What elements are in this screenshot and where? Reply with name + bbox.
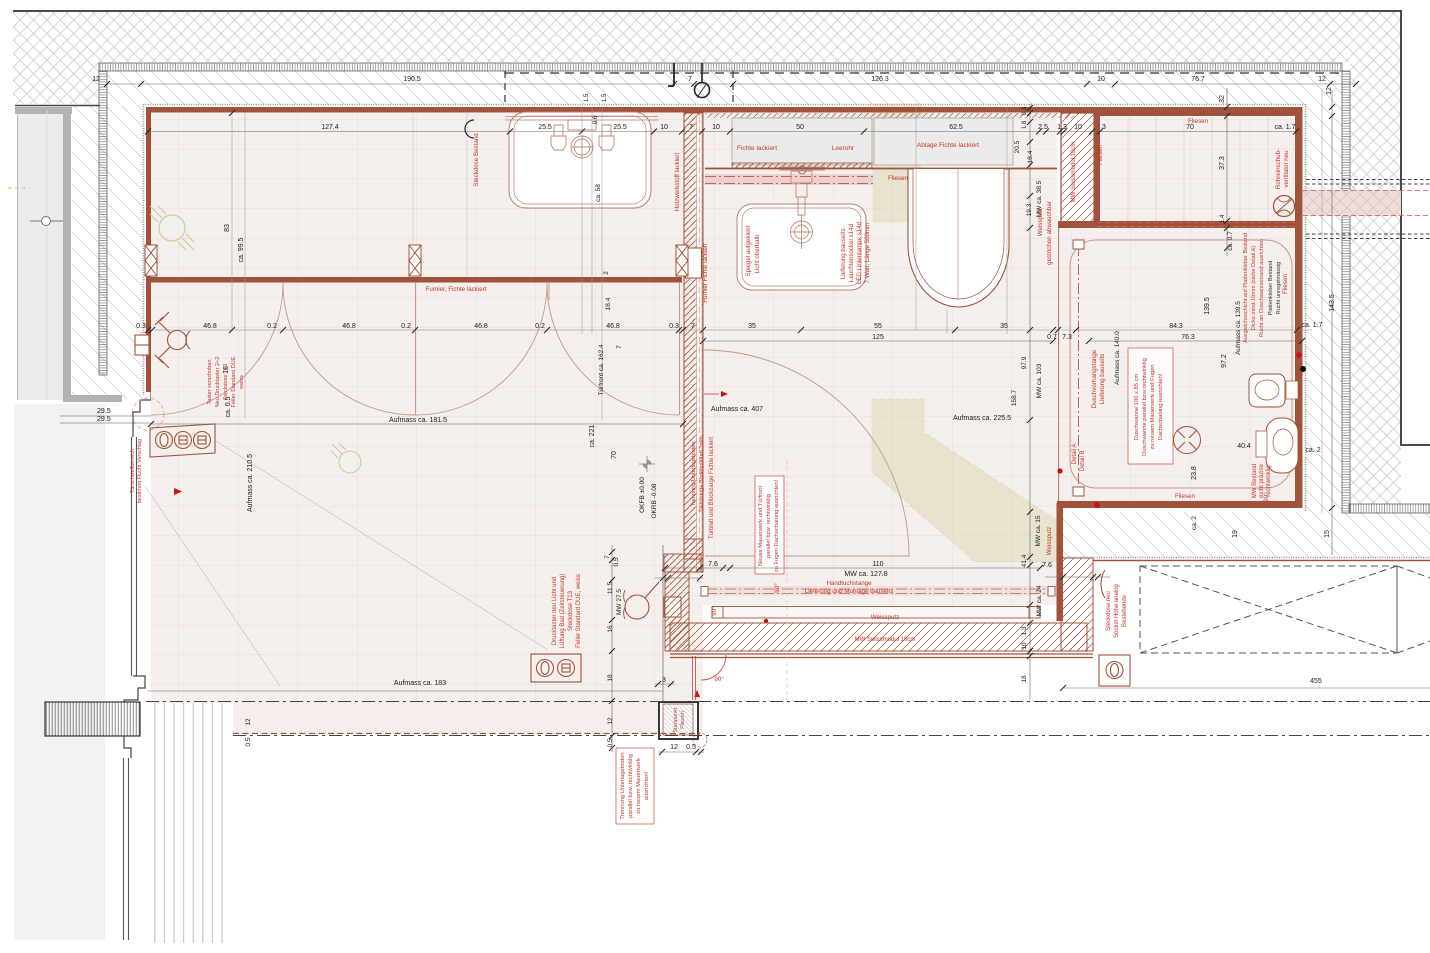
svg-text:Türfront ca. 162.4: Türfront ca. 162.4 bbox=[598, 344, 605, 396]
svg-text:10: 10 bbox=[1097, 76, 1105, 83]
svg-text:35: 35 bbox=[1000, 323, 1008, 330]
svg-text:Handtuchstange: Handtuchstange bbox=[826, 580, 872, 587]
svg-text:1.4: 1.4 bbox=[1219, 214, 1226, 223]
svg-text:Silikonfuge Bodenplatten 3mm: Silikonfuge Bodenplatten 3mm bbox=[699, 436, 705, 512]
svg-text:1.3: 1.3 bbox=[1057, 124, 1067, 131]
svg-text:7: 7 bbox=[616, 345, 623, 349]
svg-text:Türschwellbereich: Türschwellbereich bbox=[130, 449, 136, 493]
svg-text:40.4: 40.4 bbox=[1237, 443, 1251, 450]
svg-text:84.3: 84.3 bbox=[1169, 323, 1183, 330]
svg-text:455: 455 bbox=[1310, 678, 1322, 685]
svg-text:ca. 1.7: ca. 1.7 bbox=[1274, 124, 1295, 131]
svg-text:12: 12 bbox=[1318, 76, 1326, 83]
svg-text:10: 10 bbox=[1021, 642, 1028, 650]
svg-text:weiss: weiss bbox=[239, 375, 245, 390]
svg-text:Weissputz: Weissputz bbox=[1046, 527, 1053, 555]
svg-text:7: 7 bbox=[604, 555, 611, 559]
svg-text:Duschvorhangstange: Duschvorhangstange bbox=[1091, 349, 1098, 408]
svg-text:MW Bestand: MW Bestand bbox=[1252, 464, 1258, 498]
svg-text:Taster verschoben: Taster verschoben bbox=[207, 360, 213, 405]
svg-text:1.8: 1.8 bbox=[1022, 120, 1028, 129]
svg-text:11.5: 11.5 bbox=[607, 582, 614, 595]
svg-text:Ausgleichsschicht auf Plattenk: Ausgleichsschicht auf Plattenkleber Best… bbox=[1243, 233, 1249, 343]
svg-text:3: 3 bbox=[662, 677, 666, 684]
svg-text:0.2: 0.2 bbox=[401, 323, 411, 330]
svg-text:Fliesen: Fliesen bbox=[1175, 493, 1196, 500]
svg-text:Dicke mind 10mm (siehe Detail: Dicke mind 10mm (siehe Detail A) bbox=[1251, 246, 1257, 330]
svg-text:62.5: 62.5 bbox=[949, 124, 963, 131]
svg-text:MW Swissmodul 10cm: MW Swissmodul 10cm bbox=[855, 637, 916, 643]
svg-text:ca. 2: ca. 2 bbox=[1191, 516, 1198, 530]
svg-text:ca. 1.7: ca. 1.7 bbox=[1301, 322, 1322, 329]
svg-text:7 Watt, Länge 500mm: 7 Watt, Länge 500mm bbox=[864, 223, 871, 284]
svg-text:Fliesen: Fliesen bbox=[1282, 273, 1289, 294]
svg-text:1.5: 1.5 bbox=[602, 93, 608, 102]
svg-text:zu neuem Mauerwerk: zu neuem Mauerwerk bbox=[636, 758, 642, 814]
svg-text:35: 35 bbox=[748, 323, 756, 330]
svg-text:Dachschalung ausrichten!: Dachschalung ausrichten! bbox=[1158, 373, 1164, 440]
svg-text:Lüftung Bad (Zeitsteuerung): Lüftung Bad (Zeitsteuerung) bbox=[560, 574, 566, 649]
svg-text:12: 12 bbox=[670, 744, 678, 751]
svg-text:18.4: 18.4 bbox=[605, 297, 612, 310]
svg-text:19: 19 bbox=[1232, 530, 1239, 538]
svg-text:ca. 58: ca. 58 bbox=[595, 184, 602, 202]
svg-text:0.5: 0.5 bbox=[607, 738, 614, 747]
svg-text:0.5: 0.5 bbox=[245, 737, 252, 746]
svg-text:76.3: 76.3 bbox=[1181, 334, 1195, 341]
svg-text:Rucht an Duschwannenrand ausri: Rucht an Duschwannenrand ausrichten bbox=[1259, 239, 1265, 337]
svg-text:7: 7 bbox=[688, 76, 692, 83]
svg-text:Aufmass ca. 210.5: Aufmass ca. 210.5 bbox=[247, 454, 254, 512]
svg-text:90°: 90° bbox=[714, 676, 724, 683]
svg-text:Aufmass ca. 181.5: Aufmass ca. 181.5 bbox=[389, 417, 447, 424]
svg-text:90°: 90° bbox=[1263, 492, 1270, 502]
svg-text:90°: 90° bbox=[774, 583, 781, 593]
svg-text:ca. 221: ca. 221 bbox=[589, 424, 596, 447]
svg-text:0.3: 0.3 bbox=[136, 323, 146, 330]
svg-text:Licht oberhalb: Licht oberhalb bbox=[754, 234, 761, 273]
svg-text:29.5: 29.5 bbox=[97, 416, 111, 423]
svg-text:Fichte lackiert: Fichte lackiert bbox=[737, 145, 777, 152]
svg-text:25.5: 25.5 bbox=[613, 124, 627, 131]
svg-text:0.2: 0.2 bbox=[267, 323, 277, 330]
svg-text:2.5: 2.5 bbox=[1038, 124, 1048, 131]
svg-text:70: 70 bbox=[1186, 124, 1194, 131]
svg-text:Sockel Höhe analog: Sockel Höhe analog bbox=[1114, 584, 1120, 638]
svg-text:90°: 90° bbox=[711, 606, 718, 616]
svg-text:97.2: 97.2 bbox=[1221, 354, 1228, 368]
svg-text:MW ca. 15: MW ca. 15 bbox=[1035, 515, 1042, 546]
svg-text:Lieferung und Montage bauseits: Lieferung und Montage bauseits bbox=[805, 588, 893, 595]
svg-text:MW Swissmodul 10cm: MW Swissmodul 10cm bbox=[1071, 142, 1077, 203]
svg-text:16: 16 bbox=[607, 625, 614, 633]
svg-text:70: 70 bbox=[611, 451, 618, 459]
svg-text:Spiegel aufgeklebt: Spiegel aufgeklebt bbox=[745, 225, 752, 276]
svg-text:Fliesen: Fliesen bbox=[680, 711, 686, 729]
svg-text:LED Linienlampe s14d: LED Linienlampe s14d bbox=[856, 221, 863, 284]
svg-text:0.2: 0.2 bbox=[535, 323, 545, 330]
svg-text:12: 12 bbox=[245, 718, 252, 726]
svg-text:190.5: 190.5 bbox=[403, 76, 421, 83]
svg-text:37.3: 37.3 bbox=[1219, 156, 1226, 170]
svg-text:Duschwanne parallel bzw rechtw: Duschwanne parallel bzw rechtwinklig bbox=[1142, 358, 1148, 456]
svg-text:83: 83 bbox=[224, 224, 231, 232]
svg-text:Feller Standard DUE: Feller Standard DUE bbox=[231, 356, 237, 407]
svg-text:Holzwerkstoff lackiert: Holzwerkstoff lackiert bbox=[674, 153, 681, 212]
svg-text:20.5: 20.5 bbox=[1014, 140, 1021, 153]
svg-text:19.3: 19.3 bbox=[1026, 203, 1033, 216]
svg-text:76.7: 76.7 bbox=[1191, 76, 1205, 83]
svg-text:Furnier, Fichte lackiert: Furnier, Fichte lackiert bbox=[426, 286, 487, 293]
svg-text:1.5: 1.5 bbox=[584, 93, 590, 102]
svg-text:0.5: 0.5 bbox=[686, 744, 696, 751]
svg-text:Ablage Fichte lackiert: Ablage Fichte lackiert bbox=[917, 142, 979, 149]
svg-text:Steckdose Bestand: Steckdose Bestand bbox=[473, 133, 480, 187]
svg-text:Plattenkleber Bestand: Plattenkleber Bestand bbox=[1268, 261, 1274, 316]
svg-text:7: 7 bbox=[691, 323, 695, 330]
svg-text:Leerohr: Leerohr bbox=[832, 145, 855, 152]
svg-text:Fliesen: Fliesen bbox=[888, 175, 909, 182]
svg-text:29.5: 29.5 bbox=[97, 408, 111, 415]
svg-text:Neu Drucktaster 2+2: Neu Drucktaster 2+2 bbox=[215, 357, 221, 408]
svg-text:bestimmt Flucht Verschlag: bestimmt Flucht Verschlag bbox=[137, 439, 143, 504]
svg-text:Fliesen: Fliesen bbox=[1097, 144, 1104, 165]
svg-text:3: 3 bbox=[1102, 124, 1106, 131]
svg-text:Leuchtensockel s14d: Leuchtensockel s14d bbox=[848, 223, 855, 282]
svg-text:Rohreinschub-: Rohreinschub- bbox=[1275, 149, 1282, 189]
svg-text:Aufmass ca. 140.0: Aufmass ca. 140.0 bbox=[1114, 331, 1121, 385]
svg-text:Aufmass ca. 139.5: Aufmass ca. 139.5 bbox=[1235, 301, 1242, 355]
svg-text:41.4: 41.4 bbox=[1021, 554, 1028, 567]
svg-text:Trennung Unterlagsboden: Trennung Unterlagsboden bbox=[691, 442, 697, 507]
svg-text:ausrichten!: ausrichten! bbox=[644, 771, 650, 800]
svg-text:Steckdose T13: Steckdose T13 bbox=[223, 364, 229, 401]
svg-text:0.5: 0.5 bbox=[613, 557, 620, 566]
svg-text:Rucht unregelmässig: Rucht unregelmässig bbox=[1276, 262, 1282, 315]
svg-text:1.3: 1.3 bbox=[1021, 626, 1028, 635]
svg-text:0.3: 0.3 bbox=[1022, 106, 1028, 115]
svg-text:12: 12 bbox=[1326, 87, 1333, 95]
svg-text:7.3: 7.3 bbox=[1062, 334, 1072, 341]
svg-text:25.5: 25.5 bbox=[538, 124, 552, 131]
svg-text:Türblatt und Blockzarge Fichte: Türblatt und Blockzarge Fichte lackiert bbox=[709, 437, 715, 539]
svg-text:zu neuem Mauerwerk und Fugen: zu neuem Mauerwerk und Fugen bbox=[1150, 364, 1156, 449]
svg-text:7.6: 7.6 bbox=[1042, 562, 1052, 569]
svg-text:parallel bzw. rechtwinklig: parallel bzw. rechtwinklig bbox=[766, 494, 772, 558]
svg-text:7: 7 bbox=[689, 124, 693, 131]
svg-text:ca. 2: ca. 2 bbox=[1305, 447, 1320, 454]
svg-text:Furnier Fichte lackiert: Furnier Fichte lackiert bbox=[702, 243, 709, 303]
svg-text:10: 10 bbox=[660, 124, 668, 131]
svg-text:Fliesen: Fliesen bbox=[1188, 118, 1209, 125]
svg-text:zu Fugen Dachschalung ausricht: zu Fugen Dachschalung ausrichten! bbox=[774, 479, 780, 572]
svg-text:143.5: 143.5 bbox=[1329, 294, 1336, 312]
svg-text:Trennung Unterlagsboden: Trennung Unterlagsboden bbox=[620, 752, 626, 819]
svg-text:Steckdose T13: Steckdose T13 bbox=[568, 590, 574, 631]
svg-text:0.7: 0.7 bbox=[1047, 334, 1057, 341]
svg-text:Aufmass ca. 407: Aufmass ca. 407 bbox=[711, 406, 763, 413]
svg-text:12: 12 bbox=[92, 76, 100, 83]
svg-text:15: 15 bbox=[1324, 530, 1331, 538]
svg-text:rechtwinklig: rechtwinklig bbox=[1266, 465, 1272, 496]
svg-text:139.5: 139.5 bbox=[1204, 297, 1211, 315]
svg-text:ca. 0.7: ca. 0.7 bbox=[1227, 231, 1234, 251]
svg-text:OKRB -0.08: OKRB -0.08 bbox=[651, 483, 658, 518]
svg-text:2: 2 bbox=[603, 271, 610, 275]
svg-text:18: 18 bbox=[607, 674, 614, 682]
svg-text:Aufmass ca. 225.5: Aufmass ca. 225.5 bbox=[953, 415, 1011, 422]
svg-text:ventilator neu: ventilator neu bbox=[1283, 150, 1290, 188]
svg-text:gestrichen abwaschbar: gestrichen abwaschbar bbox=[1046, 201, 1053, 265]
svg-text:Detail B: Detail B bbox=[1080, 450, 1086, 471]
svg-text:10: 10 bbox=[712, 124, 720, 131]
svg-text:7.6: 7.6 bbox=[708, 561, 718, 568]
svg-text:Startpunkt: Startpunkt bbox=[673, 707, 679, 733]
svg-text:97.9: 97.9 bbox=[1021, 356, 1028, 369]
svg-text:Bestehende: Bestehende bbox=[1122, 594, 1128, 627]
svg-text:158.7: 158.7 bbox=[1011, 389, 1018, 406]
svg-text:23.8: 23.8 bbox=[1191, 466, 1198, 480]
svg-text:OKFB ±0.00: OKFB ±0.00 bbox=[639, 477, 646, 513]
svg-text:Aufmass ca. 183: Aufmass ca. 183 bbox=[394, 680, 446, 687]
svg-text:ca. 99.5: ca. 99.5 bbox=[238, 237, 245, 262]
svg-text:0.3: 0.3 bbox=[669, 323, 679, 330]
svg-text:MW ca. 127.8: MW ca. 127.8 bbox=[844, 571, 887, 578]
svg-text:Drucktaster neu Licht und: Drucktaster neu Licht und bbox=[552, 577, 558, 645]
svg-text:50: 50 bbox=[796, 124, 804, 131]
svg-text:Weissputz: Weissputz bbox=[871, 614, 899, 621]
svg-text:18.4: 18.4 bbox=[1027, 150, 1034, 163]
svg-text:125: 125 bbox=[872, 334, 884, 341]
svg-text:Duschwanne 100 x 85 cm: Duschwanne 100 x 85 cm bbox=[1134, 373, 1140, 440]
svg-text:127.4: 127.4 bbox=[321, 124, 339, 131]
svg-text:46.8: 46.8 bbox=[606, 323, 620, 330]
svg-text:32: 32 bbox=[1219, 95, 1226, 103]
svg-text:MW ca. 103: MW ca. 103 bbox=[1036, 363, 1043, 398]
svg-text:55: 55 bbox=[874, 323, 882, 330]
svg-text:Steckdose neu: Steckdose neu bbox=[1106, 591, 1112, 631]
svg-text:Detail A: Detail A bbox=[1072, 444, 1078, 465]
svg-text:18: 18 bbox=[1021, 675, 1028, 683]
svg-text:parallel bzw. rechtwinklig: parallel bzw. rechtwinklig bbox=[628, 754, 634, 818]
svg-text:Weissputz: Weissputz bbox=[1037, 208, 1044, 236]
svg-text:110: 110 bbox=[872, 561, 883, 568]
svg-text:0.6: 0.6 bbox=[593, 115, 599, 124]
svg-text:Neues Mauerwerk und Türfront: Neues Mauerwerk und Türfront bbox=[758, 486, 764, 567]
svg-text:10: 10 bbox=[1074, 124, 1082, 131]
svg-text:46.8: 46.8 bbox=[342, 323, 356, 330]
svg-text:12: 12 bbox=[607, 717, 614, 725]
svg-text:126.3: 126.3 bbox=[871, 76, 889, 83]
svg-text:MW ca. 24: MW ca. 24 bbox=[1036, 585, 1043, 616]
svg-text:Feller Standard DUE, weiss: Feller Standard DUE, weiss bbox=[576, 574, 582, 648]
svg-text:Lieferung bauseits: Lieferung bauseits bbox=[1099, 354, 1106, 405]
svg-text:Lieferung bauseits:: Lieferung bauseits: bbox=[840, 227, 847, 280]
svg-text:46.8: 46.8 bbox=[203, 323, 217, 330]
svg-text:MW 27.5: MW 27.5 bbox=[616, 589, 623, 615]
svg-text:46.8: 46.8 bbox=[474, 323, 488, 330]
